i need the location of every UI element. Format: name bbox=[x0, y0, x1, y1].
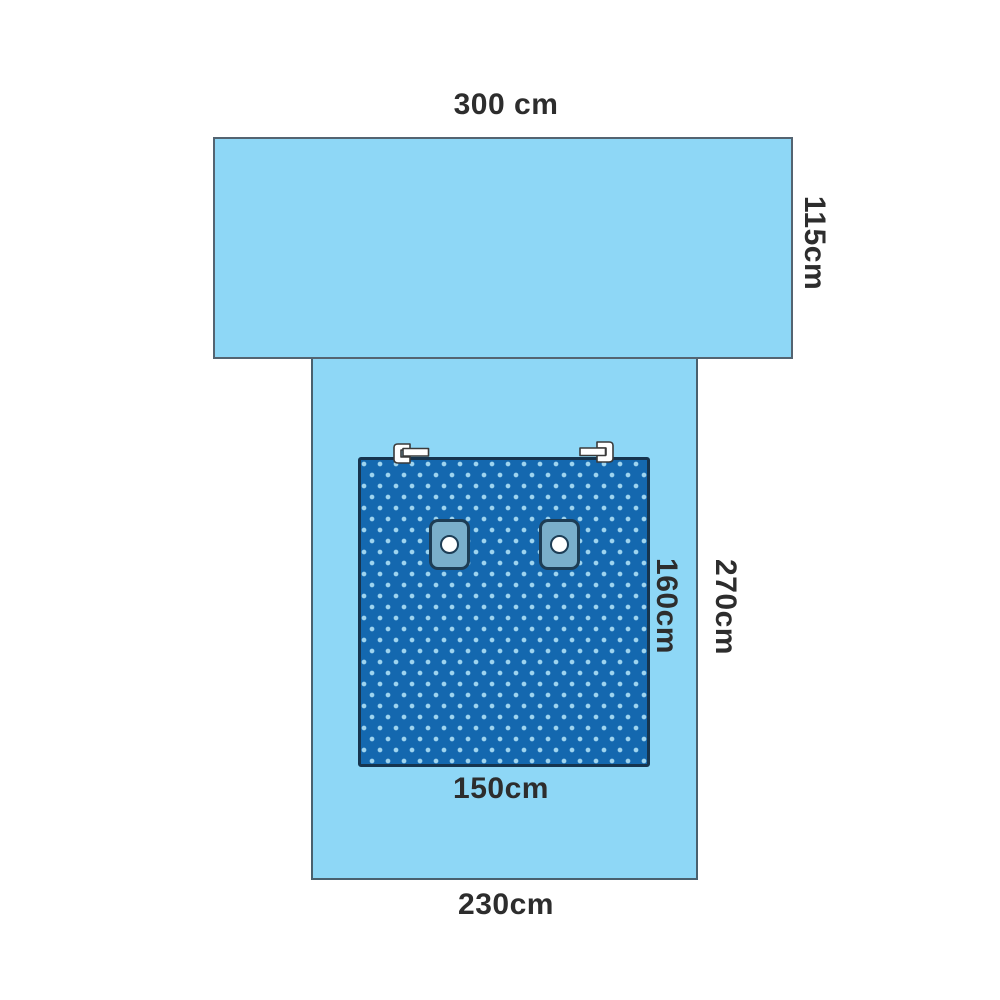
dim-label-body-height: 270cm bbox=[708, 559, 742, 655]
drape-diagram: 300 cm 115cm 160cm 270cm 150cm 230cm bbox=[0, 0, 1000, 1000]
patch-hole-right bbox=[550, 535, 569, 554]
adhesive-patch-right bbox=[539, 519, 580, 570]
patch-hole-left bbox=[440, 535, 459, 554]
dim-label-panel-height: 160cm bbox=[649, 558, 683, 654]
adhesive-patch-left bbox=[429, 519, 470, 570]
dim-label-body-width: 230cm bbox=[406, 888, 606, 922]
top-sheet bbox=[213, 137, 793, 359]
dim-label-top-width: 300 cm bbox=[406, 88, 606, 122]
dim-label-top-height: 115cm bbox=[797, 196, 831, 290]
reinforced-panel bbox=[358, 457, 650, 767]
dim-label-panel-width: 150cm bbox=[401, 772, 601, 806]
